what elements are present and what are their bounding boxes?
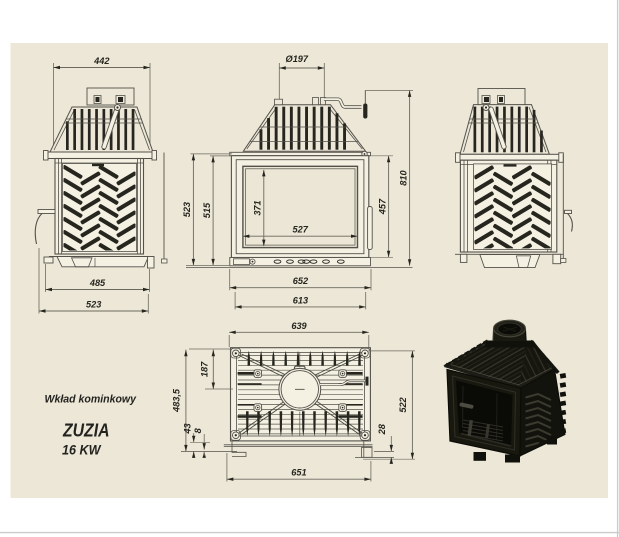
svg-text:515: 515 (202, 202, 212, 218)
svg-text:28: 28 (377, 423, 387, 435)
svg-text:187: 187 (200, 361, 210, 377)
svg-text:16 KW: 16 KW (62, 441, 102, 457)
svg-text:483,5: 483,5 (172, 388, 182, 413)
svg-text:522: 522 (398, 396, 408, 412)
svg-text:527: 527 (293, 225, 309, 235)
svg-text:ZUZIA: ZUZIA (62, 420, 109, 441)
svg-text:613: 613 (293, 295, 308, 305)
svg-text:523: 523 (86, 300, 101, 310)
svg-text:810: 810 (398, 170, 408, 186)
svg-text:Wkład kominkowy: Wkład kominkowy (45, 394, 137, 406)
svg-text:651: 651 (291, 468, 306, 478)
svg-text:8: 8 (193, 427, 203, 433)
svg-text:371: 371 (253, 200, 263, 215)
svg-text:43: 43 (183, 423, 193, 434)
svg-text:Ø197: Ø197 (286, 54, 309, 64)
svg-text:442: 442 (93, 56, 110, 66)
svg-text:523: 523 (182, 202, 192, 217)
svg-text:485: 485 (89, 278, 106, 288)
svg-text:639: 639 (291, 321, 307, 331)
svg-text:652: 652 (293, 276, 309, 286)
svg-text:457: 457 (377, 198, 387, 215)
